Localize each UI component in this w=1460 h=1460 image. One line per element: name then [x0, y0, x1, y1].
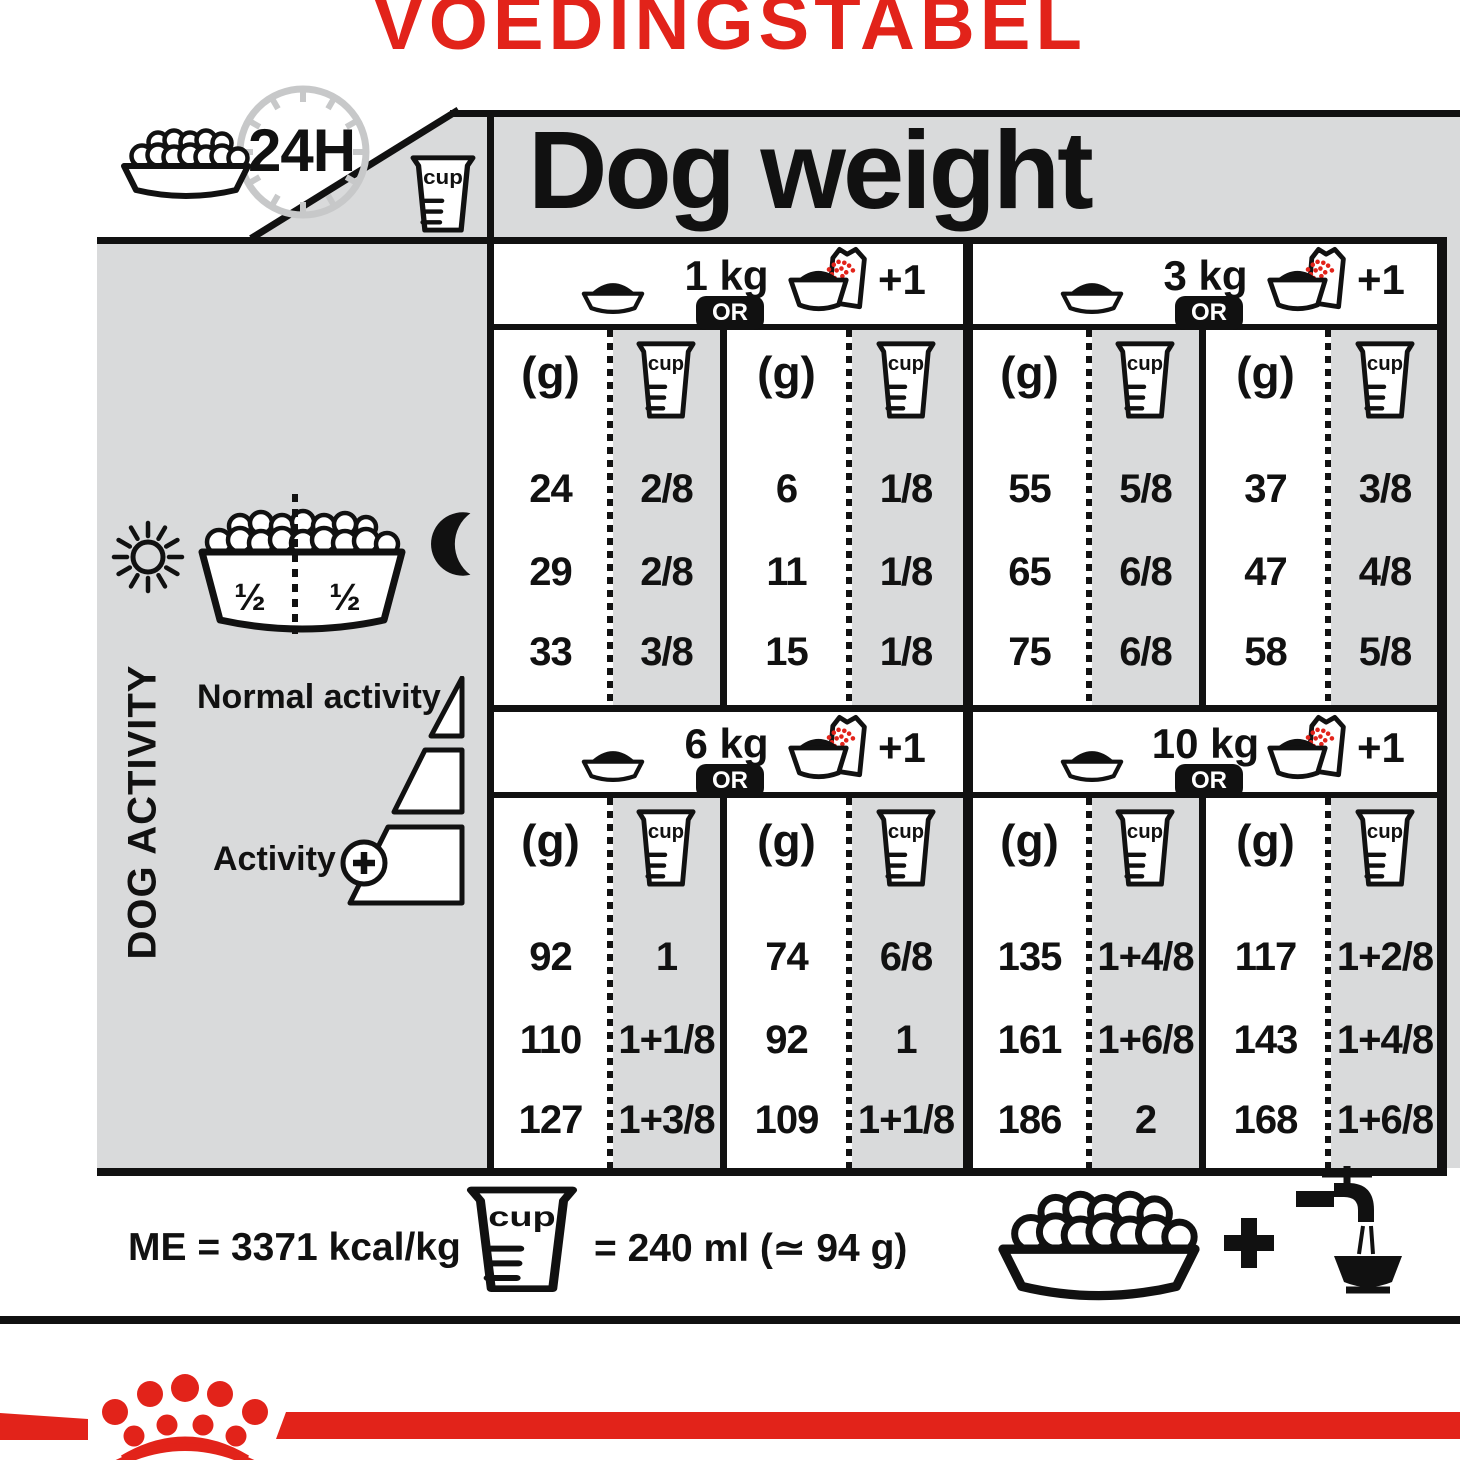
table-cell: 65 — [973, 545, 1086, 599]
table-cell: 1+1/8 — [613, 1013, 720, 1067]
footer-divider — [0, 1316, 1460, 1324]
measuring-cup-icon: cup — [1115, 806, 1175, 888]
weight-section-6kg: 6 kg OR +1 (g) cup (g) cup 92 1 74 6/8 1… — [494, 712, 963, 1168]
table-cell: 1+4/8 — [1092, 930, 1199, 984]
plus-one-label: +1 — [1357, 724, 1405, 772]
table-cell: 6/8 — [852, 930, 960, 984]
grams-column-header: (g) — [973, 814, 1086, 868]
table-bottom-border — [97, 1168, 1447, 1176]
table-cell: 135 — [973, 930, 1086, 984]
dry-food-bowl-icon — [1057, 738, 1127, 782]
wet-food-pouch-bowl-icon — [785, 244, 873, 316]
red-brand-band-left — [0, 1413, 88, 1440]
or-divider-line — [1199, 798, 1206, 1168]
cup-label: cup — [423, 166, 463, 189]
measuring-cup-icon: cup — [876, 338, 936, 420]
table-cell: 1+2/8 — [1331, 930, 1439, 984]
cup-label: cup — [1127, 353, 1163, 375]
dry-food-bowl-icon — [578, 738, 648, 782]
table-left-border — [487, 113, 494, 1175]
table-cell: 24 — [494, 462, 607, 516]
table-cell: 5/8 — [1092, 462, 1199, 516]
cup-label: cup — [1367, 821, 1403, 843]
table-cell: 74 — [727, 930, 846, 984]
dry-food-bowl-icon — [578, 270, 648, 314]
plus-one-label: +1 — [1357, 256, 1405, 304]
section-header: 1 kg OR +1 — [494, 244, 963, 324]
table-cell: 58 — [1206, 625, 1325, 679]
measuring-cup-icon: cup — [410, 152, 476, 234]
table-cell: 110 — [494, 1013, 607, 1067]
section-columns: (g) cup (g) cup 92 1 74 6/8 110 1+1/8 92… — [494, 798, 963, 1168]
plus-one-label: +1 — [878, 724, 926, 772]
table-cell: 1/8 — [852, 462, 960, 516]
table-cell: 1+3/8 — [613, 1093, 720, 1147]
grams-column-header: (g) — [727, 814, 846, 868]
table-cell: 5/8 — [1331, 625, 1439, 679]
grams-column-header: (g) — [1206, 346, 1325, 400]
24h-label: 24H — [248, 116, 355, 185]
section-columns: (g) cup (g) cup 135 1+4/8 117 1+2/8 161 … — [973, 798, 1437, 1168]
dog-weight-heading: Dog weight — [528, 116, 1091, 226]
table-cell: 75 — [973, 625, 1086, 679]
cup-label: cup — [1367, 353, 1403, 375]
table-cell: 2 — [1092, 1093, 1199, 1147]
table-cell: 6 — [727, 462, 846, 516]
page-title: VOEDINGSTABEL — [0, 0, 1460, 62]
wet-food-pouch-bowl-icon — [785, 712, 873, 784]
table-cell: 161 — [973, 1013, 1086, 1067]
table-cell: 168 — [1206, 1093, 1325, 1147]
table-cell: 6/8 — [1092, 625, 1199, 679]
grams-column-header: (g) — [727, 346, 846, 400]
table-cell: 1+1/8 — [852, 1093, 960, 1147]
grams-column-header: (g) — [1206, 814, 1325, 868]
cup-label: cup — [888, 821, 924, 843]
or-badge: OR — [696, 296, 764, 330]
measuring-cup-icon: cup — [636, 806, 696, 888]
grams-column-header: (g) — [973, 346, 1086, 400]
or-badge: OR — [696, 764, 764, 798]
measuring-cup-icon: cup — [466, 1182, 578, 1294]
table-cell: 33 — [494, 625, 607, 679]
dog-activity-label: DOG ACTIVITY — [121, 665, 166, 960]
table-cell: 3/8 — [1331, 462, 1439, 516]
table-cell: 1 — [852, 1013, 960, 1067]
table-cell: 3/8 — [613, 625, 720, 679]
moon-icon — [420, 508, 476, 580]
wet-food-pouch-bowl-icon — [1264, 244, 1352, 316]
cup-volume-label: = 240 ml (≃ 94 g) — [594, 1226, 907, 1271]
measuring-cup-icon: cup — [1355, 338, 1415, 420]
table-cell: 109 — [727, 1093, 846, 1147]
table-cell: 4/8 — [1331, 545, 1439, 599]
half-left-label: ½ — [213, 576, 287, 620]
royal-canin-crown-logo — [93, 1372, 277, 1460]
weight-section-3kg: 3 kg OR +1 (g) cup (g) cup 55 5/8 37 3/8… — [973, 244, 1437, 705]
table-middle-horizontal-border — [487, 705, 1447, 712]
table-cell: 143 — [1206, 1013, 1325, 1067]
section-columns: (g) cup (g) cup 55 5/8 37 3/8 65 6/8 47 … — [973, 330, 1437, 705]
kibble-bowl-icon — [110, 120, 262, 204]
section-header: 10 kg OR +1 — [973, 712, 1437, 792]
cup-label: cup — [648, 353, 684, 375]
measuring-cup-icon: cup — [876, 806, 936, 888]
measuring-cup-icon: cup — [1355, 806, 1415, 888]
table-cell: 186 — [973, 1093, 1086, 1147]
grams-column-header: (g) — [494, 814, 607, 868]
table-cell: 1/8 — [852, 625, 960, 679]
water-tap-icon — [1278, 1164, 1404, 1306]
weight-section-1kg: 1 kg OR +1 (g) cup (g) cup 24 2/8 6 1/8 … — [494, 244, 963, 705]
cup-label: cup — [488, 1202, 555, 1233]
cup-label: cup — [1127, 821, 1163, 843]
table-cell: 15 — [727, 625, 846, 679]
table-cell: 11 — [727, 545, 846, 599]
table-cell: 29 — [494, 545, 607, 599]
or-badge: OR — [1175, 764, 1243, 798]
table-cell: 1+4/8 — [1331, 1013, 1439, 1067]
section-columns: (g) cup (g) cup 24 2/8 6 1/8 29 2/8 11 1… — [494, 330, 963, 705]
table-cell: 55 — [973, 462, 1086, 516]
or-badge: OR — [1175, 296, 1243, 330]
table-cell: 2/8 — [613, 462, 720, 516]
table-cell: 1/8 — [852, 545, 960, 599]
table-cell: 92 — [727, 1013, 846, 1067]
table-cell: 2/8 — [613, 545, 720, 599]
or-divider-line — [720, 798, 727, 1168]
or-divider-line — [720, 330, 727, 705]
table-cell: 6/8 — [1092, 545, 1199, 599]
measuring-cup-icon: cup — [1115, 338, 1175, 420]
weight-section-10kg: 10 kg OR +1 (g) cup (g) cup 135 1+4/8 11… — [973, 712, 1437, 1168]
section-header: 6 kg OR +1 — [494, 712, 963, 792]
table-cell: 92 — [494, 930, 607, 984]
section-header: 3 kg OR +1 — [973, 244, 1437, 324]
right-gray-strip — [1447, 237, 1460, 1168]
kibble-bowl-icon — [980, 1178, 1218, 1308]
half-divider-dotted-line — [292, 494, 298, 634]
table-top-border — [97, 237, 1447, 244]
table-cell: 1 — [613, 930, 720, 984]
table-cell: 127 — [494, 1093, 607, 1147]
table-cell: 47 — [1206, 545, 1325, 599]
red-brand-band-right — [276, 1412, 1460, 1439]
dry-food-bowl-icon — [1057, 270, 1127, 314]
half-right-label: ½ — [308, 576, 382, 620]
measuring-cup-icon: cup — [636, 338, 696, 420]
activity-plus-label: Activity — [213, 840, 336, 879]
me-kcal-label: ME = 3371 kcal/kg — [128, 1226, 461, 1270]
plus-icon — [1224, 1218, 1274, 1268]
plus-one-label: +1 — [878, 256, 926, 304]
table-cell: 1+6/8 — [1092, 1013, 1199, 1067]
table-cell: 1+6/8 — [1331, 1093, 1439, 1147]
cup-label: cup — [888, 353, 924, 375]
or-divider-line — [1199, 330, 1206, 705]
table-cell: 37 — [1206, 462, 1325, 516]
activity-level-ramp-icon — [338, 676, 468, 906]
wet-food-pouch-bowl-icon — [1264, 712, 1352, 784]
table-cell: 117 — [1206, 930, 1325, 984]
grams-column-header: (g) — [494, 346, 607, 400]
cup-label: cup — [648, 821, 684, 843]
